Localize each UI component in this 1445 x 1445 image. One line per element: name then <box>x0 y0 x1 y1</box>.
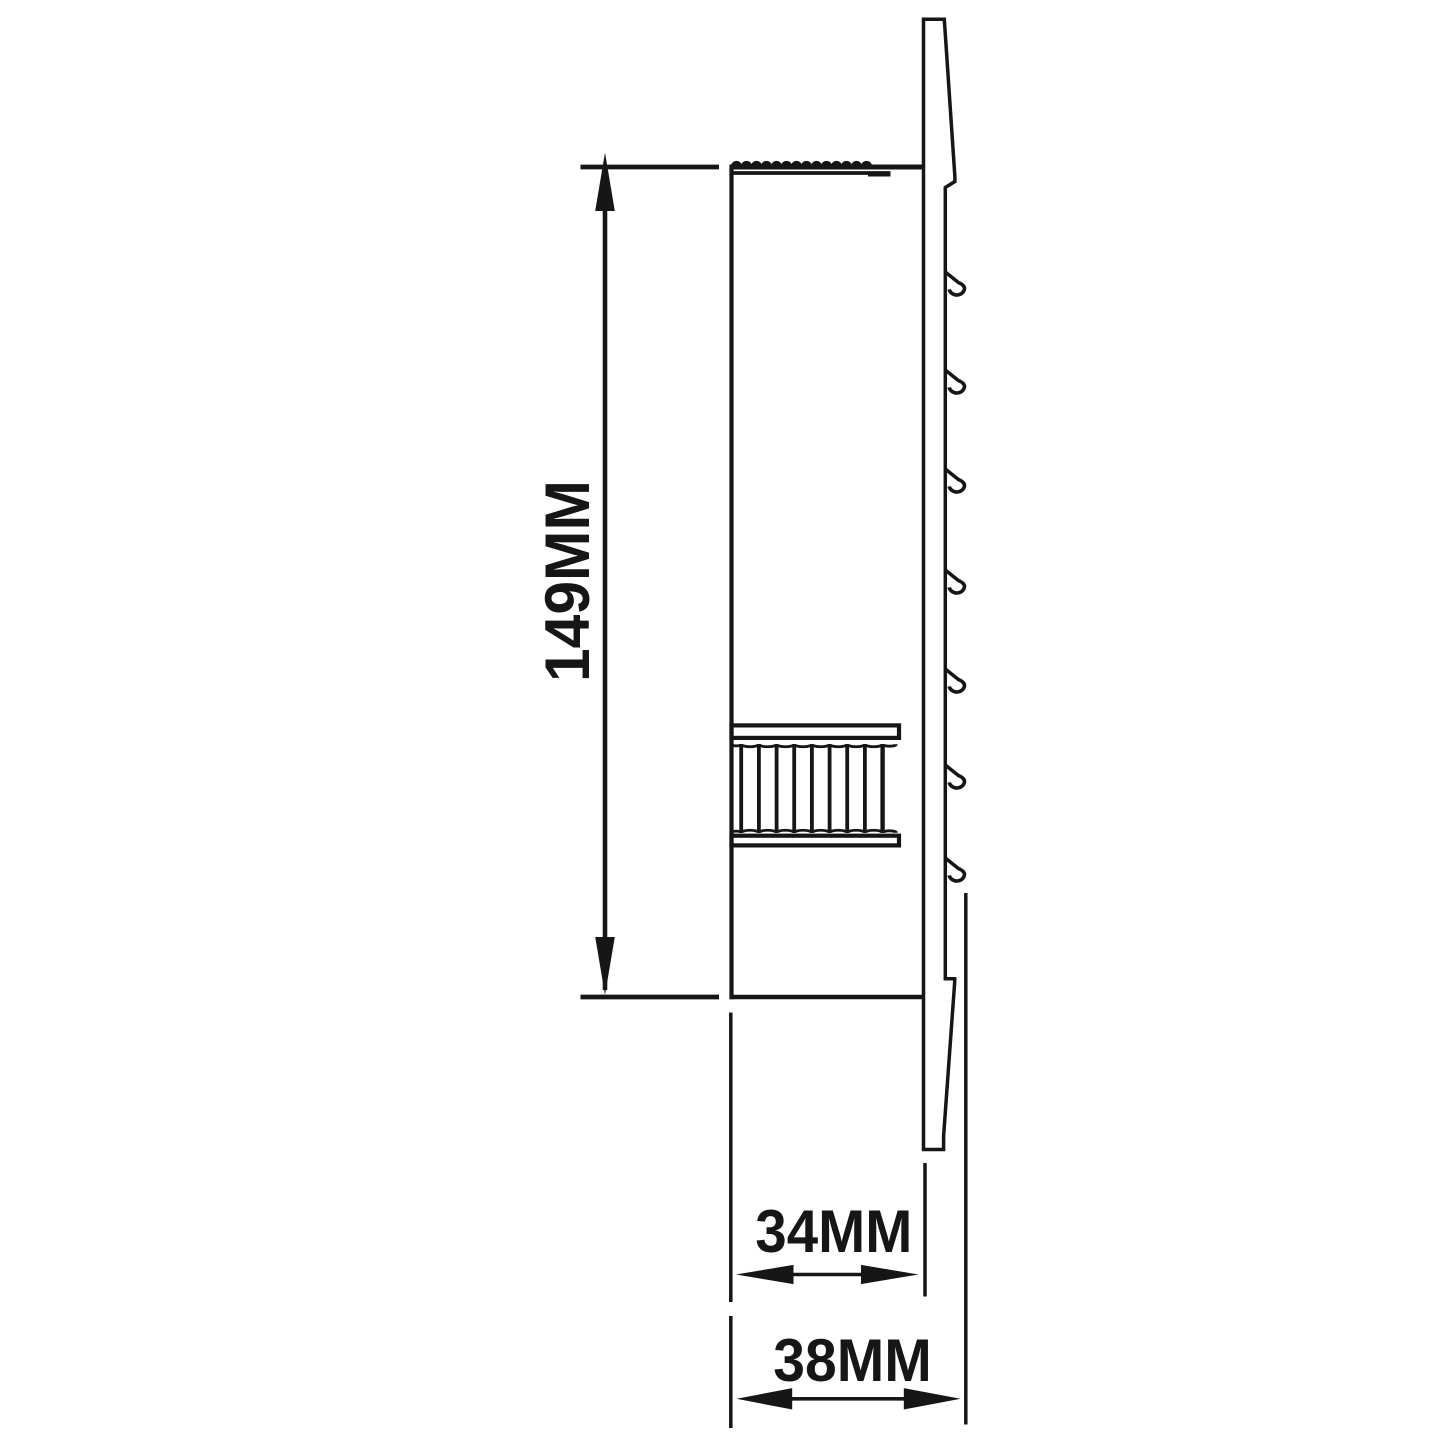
svg-text:149MM: 149MM <box>533 480 603 682</box>
svg-text:34MM: 34MM <box>755 1198 912 1265</box>
svg-text:38MM: 38MM <box>773 1327 932 1394</box>
